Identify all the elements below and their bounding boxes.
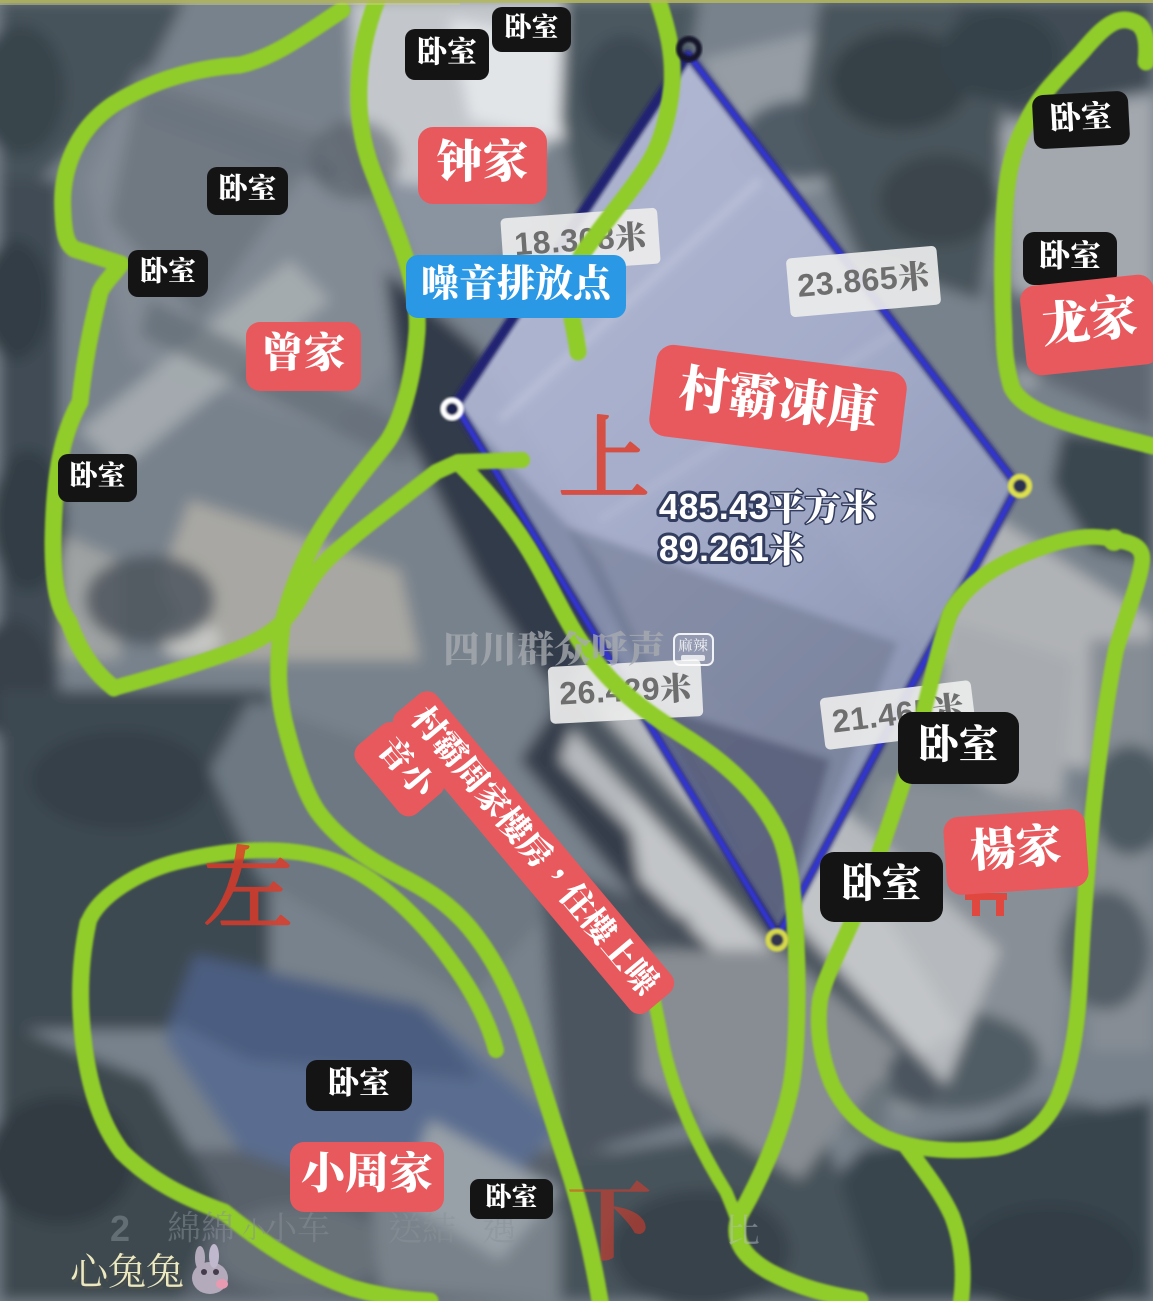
svg-text:2: 2 <box>709 528 729 569</box>
svg-text:2: 2 <box>558 675 578 712</box>
svg-text:.: . <box>719 486 729 527</box>
svg-text:1: 1 <box>749 528 769 569</box>
svg-text:8: 8 <box>679 486 699 527</box>
svg-text:2: 2 <box>110 1208 130 1249</box>
svg-text:5: 5 <box>698 486 718 527</box>
svg-text:6: 6 <box>729 528 749 569</box>
svg-text:4: 4 <box>659 486 679 527</box>
svg-text:8: 8 <box>659 528 679 569</box>
svg-text:9: 9 <box>679 528 699 569</box>
svg-text:5: 5 <box>878 259 899 296</box>
svg-text:6: 6 <box>577 674 597 711</box>
svg-text:3: 3 <box>749 486 769 527</box>
svg-text:4: 4 <box>729 486 749 527</box>
svg-text:.: . <box>699 528 709 569</box>
svg-text:3: 3 <box>814 265 835 302</box>
